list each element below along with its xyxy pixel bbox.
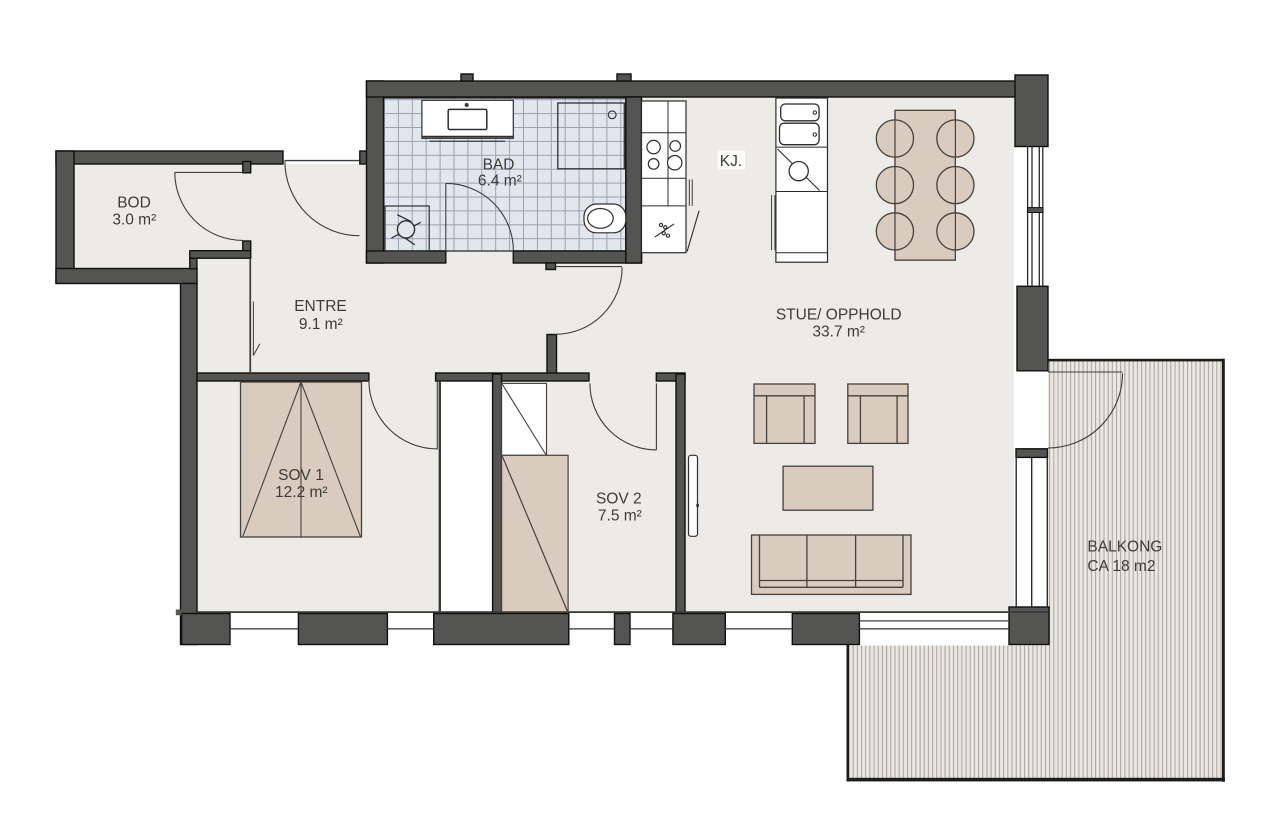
svg-text:12.2 m²: 12.2 m² [275, 484, 328, 501]
svg-text:KJ.: KJ. [720, 153, 742, 170]
svg-text:BAD: BAD [483, 157, 515, 174]
svg-text:CA 18 m2: CA 18 m2 [1087, 558, 1155, 575]
svg-text:9.1 m²: 9.1 m² [299, 316, 343, 333]
svg-text:7.5 m²: 7.5 m² [598, 507, 642, 524]
svg-text:BALKONG: BALKONG [1087, 539, 1162, 556]
svg-text:STUE/ OPPHOLD: STUE/ OPPHOLD [776, 307, 902, 324]
svg-text:BOD: BOD [117, 194, 151, 211]
svg-text:33.7 m²: 33.7 m² [812, 324, 865, 341]
svg-text:SOV 2: SOV 2 [596, 491, 642, 508]
svg-text:SOV 1: SOV 1 [278, 467, 324, 484]
svg-text:6.4 m²: 6.4 m² [478, 172, 522, 189]
svg-text:3.0 m²: 3.0 m² [112, 212, 156, 229]
svg-text:ENTRE: ENTRE [294, 298, 347, 315]
